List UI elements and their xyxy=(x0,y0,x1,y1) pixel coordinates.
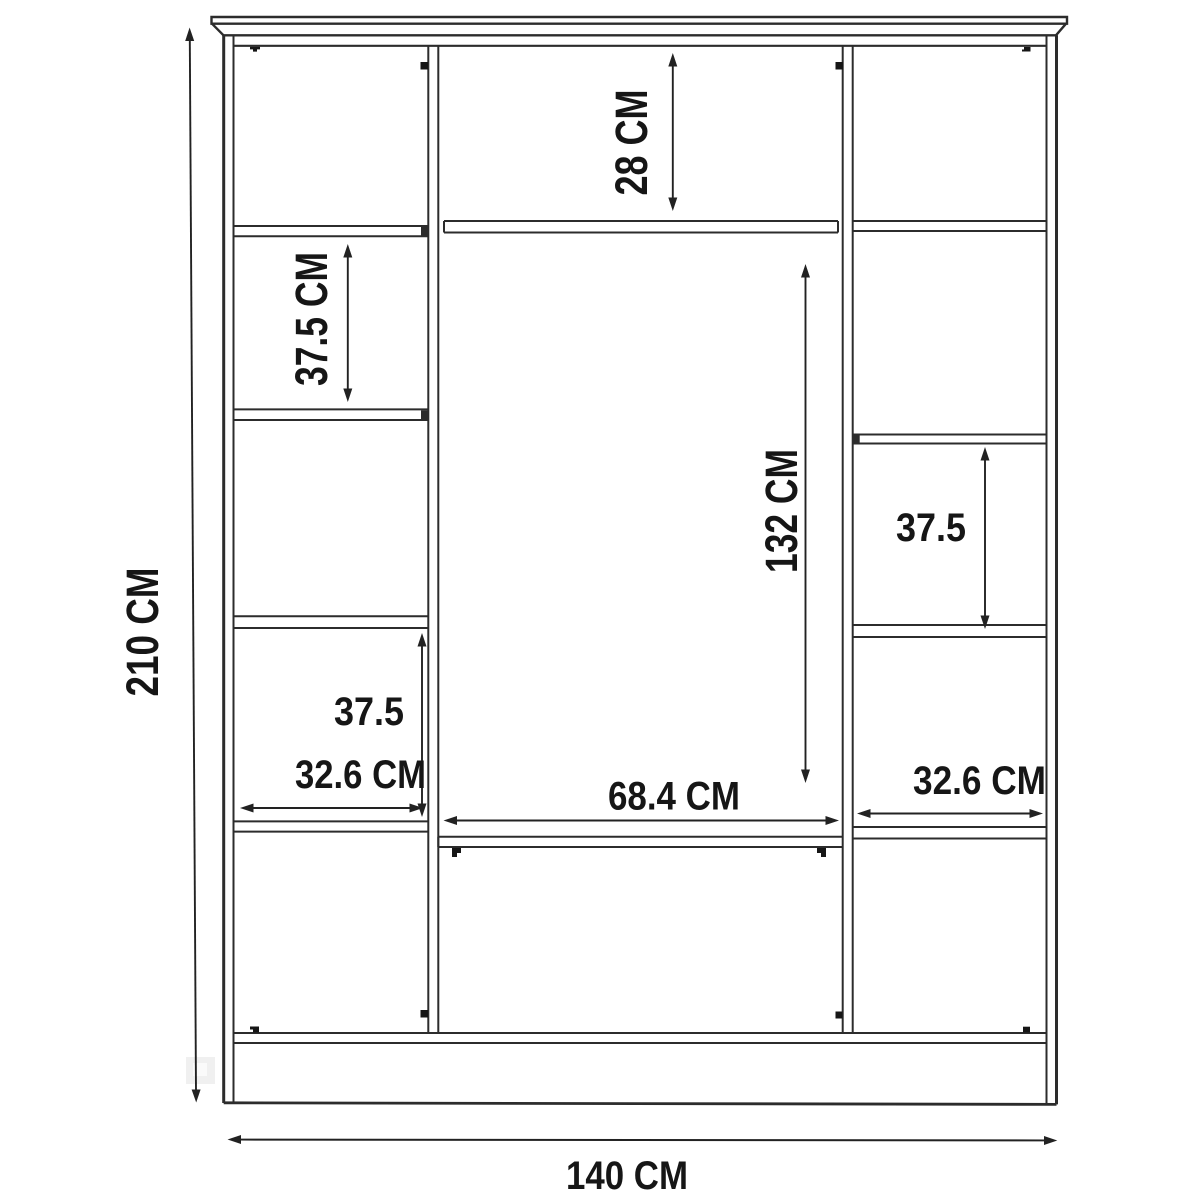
svg-text:37.5: 37.5 xyxy=(334,690,404,734)
svg-text:37.5: 37.5 xyxy=(896,506,966,550)
svg-text:210 CM: 210 CM xyxy=(117,568,168,697)
svg-text:68.4 CM: 68.4 CM xyxy=(608,775,740,819)
svg-text:132 CM: 132 CM xyxy=(756,449,807,573)
svg-text:28 CM: 28 CM xyxy=(606,90,657,196)
svg-text:32.6 CM: 32.6 CM xyxy=(913,759,1046,803)
svg-text:37.5 CM: 37.5 CM xyxy=(286,252,337,386)
svg-text:32.6 CM: 32.6 CM xyxy=(295,753,426,797)
svg-text:140 CM: 140 CM xyxy=(566,1154,688,1198)
